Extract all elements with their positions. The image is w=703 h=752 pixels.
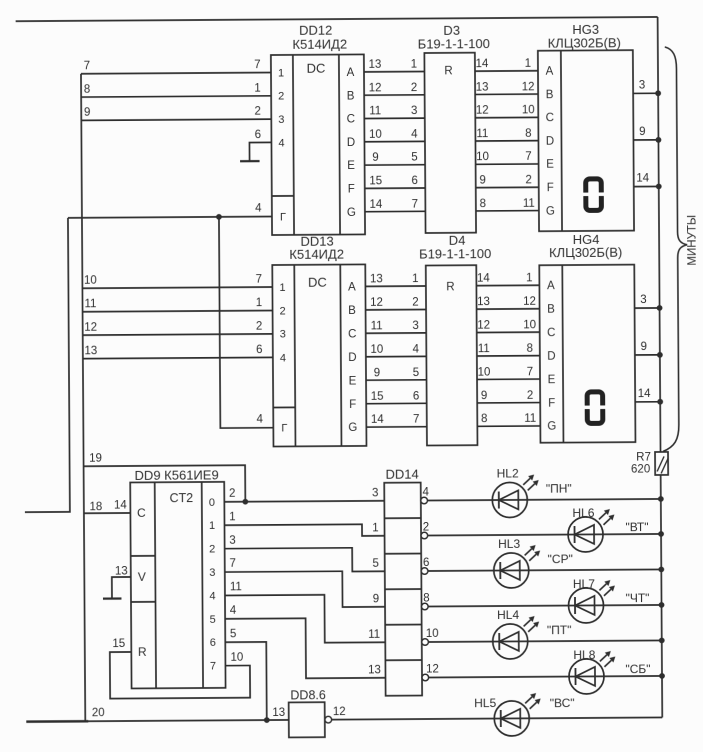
svg-text:15: 15: [371, 391, 384, 403]
svg-text:620: 620: [631, 464, 650, 476]
svg-text:HL8: HL8: [573, 648, 595, 662]
svg-text:13: 13: [476, 81, 489, 93]
svg-text:4: 4: [280, 352, 286, 364]
svg-text:13: 13: [115, 565, 128, 577]
svg-text:12: 12: [369, 82, 382, 94]
svg-text:R7: R7: [636, 452, 651, 464]
svg-text:HL5: HL5: [474, 696, 496, 710]
svg-text:4: 4: [278, 137, 284, 149]
svg-text:К514ИД2: К514ИД2: [292, 37, 347, 52]
svg-text:7: 7: [84, 60, 90, 72]
svg-text:B: B: [348, 305, 356, 317]
svg-text:7: 7: [256, 274, 262, 286]
svg-text:8: 8: [84, 84, 90, 96]
svg-text:10: 10: [478, 366, 491, 378]
svg-text:"ПН": "ПН": [546, 482, 572, 496]
svg-text:C: C: [347, 114, 355, 126]
svg-text:14: 14: [638, 388, 651, 400]
svg-text:HL6: HL6: [572, 506, 594, 520]
svg-text:11: 11: [476, 128, 488, 140]
svg-text:2: 2: [525, 174, 531, 186]
svg-text:DD9 К561ИЕ9: DD9 К561ИЕ9: [135, 467, 219, 483]
svg-text:1: 1: [279, 282, 285, 294]
svg-text:3: 3: [280, 329, 286, 341]
svg-text:10: 10: [369, 129, 382, 141]
svg-text:Б19-1-1-100: Б19-1-1-100: [419, 246, 491, 261]
svg-text:B: B: [547, 304, 555, 316]
svg-text:G: G: [348, 422, 357, 434]
svg-text:9: 9: [641, 341, 647, 353]
svg-text:R: R: [446, 281, 454, 293]
svg-text:20: 20: [92, 707, 105, 719]
svg-text:DD8.6: DD8.6: [290, 688, 326, 702]
svg-text:R: R: [444, 65, 452, 77]
svg-text:HL2: HL2: [497, 467, 519, 481]
svg-text:0: 0: [209, 497, 215, 509]
svg-text:4: 4: [423, 486, 430, 498]
svg-text:5: 5: [413, 367, 419, 379]
svg-text:V: V: [138, 570, 146, 584]
svg-text:F: F: [349, 399, 356, 411]
svg-text:13: 13: [84, 345, 97, 357]
svg-text:15: 15: [112, 638, 125, 650]
svg-text:CT2: CT2: [169, 491, 193, 505]
svg-text:14: 14: [477, 273, 490, 285]
svg-text:12: 12: [523, 296, 536, 308]
svg-text:11: 11: [478, 343, 490, 355]
svg-text:1: 1: [278, 67, 284, 79]
svg-text:11: 11: [230, 581, 242, 593]
svg-text:13: 13: [477, 296, 490, 308]
svg-text:D: D: [547, 351, 555, 363]
svg-text:G: G: [546, 205, 555, 217]
svg-text:E: E: [347, 160, 355, 172]
svg-text:13: 13: [272, 707, 285, 719]
svg-text:14: 14: [114, 499, 127, 511]
svg-text:7: 7: [413, 414, 419, 426]
svg-text:13: 13: [368, 59, 381, 71]
svg-text:"ЧТ": "ЧТ": [626, 591, 650, 605]
svg-text:9: 9: [373, 593, 379, 605]
svg-text:6: 6: [210, 637, 216, 649]
svg-text:DC: DC: [308, 275, 327, 290]
svg-text:9: 9: [639, 126, 645, 138]
svg-text:F: F: [548, 397, 555, 409]
svg-text:D: D: [347, 137, 355, 149]
svg-text:19: 19: [89, 453, 102, 465]
svg-text:4: 4: [255, 203, 262, 215]
svg-text:7: 7: [527, 366, 533, 378]
svg-text:3: 3: [278, 114, 284, 126]
svg-text:Г: Г: [281, 423, 287, 435]
svg-text:3: 3: [411, 105, 417, 117]
svg-text:КЛЦ302Б(В): КЛЦ302Б(В): [548, 35, 621, 50]
svg-text:"СБ": "СБ": [625, 662, 650, 676]
svg-text:11: 11: [85, 298, 97, 310]
svg-text:10: 10: [426, 628, 439, 640]
svg-text:14: 14: [369, 199, 382, 211]
svg-text:3: 3: [639, 79, 645, 91]
svg-text:1: 1: [525, 58, 531, 70]
svg-text:12: 12: [370, 297, 383, 309]
svg-text:D: D: [546, 136, 554, 148]
svg-text:"ПТ": "ПТ": [547, 623, 572, 637]
svg-text:10: 10: [523, 319, 536, 331]
svg-text:2: 2: [229, 488, 235, 500]
svg-text:1: 1: [372, 522, 378, 534]
svg-text:C: C: [546, 112, 554, 124]
svg-text:1: 1: [209, 520, 215, 532]
svg-text:10: 10: [476, 151, 489, 163]
svg-text:12: 12: [477, 319, 490, 331]
svg-text:12: 12: [522, 81, 535, 93]
svg-text:4: 4: [257, 414, 264, 426]
svg-text:G: G: [347, 207, 356, 219]
svg-text:14: 14: [636, 173, 649, 185]
svg-text:5: 5: [210, 614, 216, 626]
svg-text:12: 12: [333, 706, 346, 718]
svg-text:9: 9: [84, 107, 90, 119]
svg-text:3: 3: [640, 294, 646, 306]
svg-text:1: 1: [229, 511, 235, 523]
svg-text:2: 2: [278, 91, 284, 103]
svg-text:К514ИД2: К514ИД2: [289, 247, 344, 262]
svg-text:"СР": "СР": [548, 552, 573, 566]
svg-text:6: 6: [256, 344, 262, 356]
svg-text:13: 13: [370, 273, 383, 285]
svg-text:8: 8: [480, 198, 486, 210]
svg-text:2: 2: [527, 390, 533, 402]
svg-text:F: F: [348, 183, 355, 195]
svg-text:3: 3: [412, 320, 418, 332]
svg-text:2: 2: [411, 82, 417, 94]
svg-text:4: 4: [413, 343, 420, 355]
svg-text:7: 7: [210, 661, 216, 673]
svg-text:9: 9: [479, 175, 485, 187]
svg-text:"ВТ": "ВТ": [625, 520, 648, 534]
svg-text:4: 4: [209, 590, 215, 602]
svg-text:8: 8: [525, 128, 531, 140]
svg-text:2: 2: [279, 305, 285, 317]
svg-text:11: 11: [524, 413, 536, 425]
svg-text:6: 6: [255, 129, 261, 141]
svg-text:18: 18: [89, 501, 102, 513]
svg-text:15: 15: [369, 175, 382, 187]
svg-text:2: 2: [255, 106, 261, 118]
svg-text:E: E: [548, 374, 556, 386]
svg-text:10: 10: [230, 652, 243, 664]
svg-text:1: 1: [256, 297, 262, 309]
svg-text:8: 8: [481, 413, 487, 425]
svg-text:6: 6: [413, 390, 419, 402]
svg-text:G: G: [547, 421, 556, 433]
svg-text:C: C: [348, 328, 356, 340]
svg-text:5: 5: [411, 152, 417, 164]
svg-text:7: 7: [525, 151, 531, 163]
svg-text:14: 14: [371, 414, 384, 426]
svg-text:11: 11: [523, 198, 535, 210]
svg-text:9: 9: [374, 367, 380, 379]
svg-text:B: B: [546, 89, 554, 101]
svg-text:3: 3: [209, 567, 215, 579]
svg-text:9: 9: [481, 390, 487, 402]
svg-text:2: 2: [412, 297, 418, 309]
svg-text:3: 3: [229, 535, 235, 547]
svg-text:E: E: [546, 159, 554, 171]
svg-text:5: 5: [373, 558, 379, 570]
svg-text:A: A: [546, 66, 554, 78]
svg-text:6: 6: [411, 175, 417, 187]
svg-text:8: 8: [527, 343, 533, 355]
svg-text:2: 2: [423, 521, 429, 533]
svg-text:2: 2: [256, 320, 262, 332]
svg-text:11: 11: [371, 320, 383, 332]
svg-text:HL4: HL4: [497, 608, 519, 622]
svg-text:11: 11: [368, 629, 380, 641]
svg-text:E: E: [349, 375, 357, 387]
svg-text:1: 1: [526, 272, 532, 284]
svg-text:7: 7: [412, 198, 418, 210]
svg-text:12: 12: [84, 322, 97, 334]
svg-text:C: C: [137, 506, 146, 520]
svg-text:C: C: [547, 327, 555, 339]
svg-text:10: 10: [84, 275, 97, 287]
svg-text:F: F: [547, 182, 554, 194]
svg-text:Г: Г: [280, 211, 286, 223]
svg-text:3: 3: [372, 487, 378, 499]
svg-text:12: 12: [426, 663, 439, 675]
svg-text:D: D: [348, 352, 356, 364]
svg-text:10: 10: [522, 104, 535, 116]
svg-text:B: B: [347, 90, 355, 102]
svg-text:DD14: DD14: [385, 467, 418, 482]
svg-text:1: 1: [411, 59, 417, 71]
svg-text:6: 6: [423, 557, 429, 569]
svg-text:2: 2: [209, 544, 215, 556]
svg-text:7: 7: [230, 558, 236, 570]
svg-text:"ВС": "ВС": [550, 696, 575, 710]
svg-text:МИНУТЫ: МИНУТЫ: [686, 215, 698, 266]
svg-text:DC: DC: [307, 61, 326, 76]
svg-text:1: 1: [412, 273, 418, 285]
svg-text:1: 1: [254, 82, 260, 94]
svg-text:DD12: DD12: [299, 23, 332, 38]
svg-text:13: 13: [368, 664, 381, 676]
svg-text:КЛЦ302Б(В): КЛЦ302Б(В): [549, 245, 622, 260]
svg-text:A: A: [547, 280, 555, 292]
svg-text:14: 14: [475, 58, 488, 70]
svg-text:7: 7: [254, 59, 260, 71]
svg-text:HL7: HL7: [573, 577, 595, 591]
svg-text:10: 10: [370, 344, 383, 356]
svg-text:5: 5: [230, 628, 236, 640]
svg-text:12: 12: [476, 105, 489, 117]
svg-text:4: 4: [230, 605, 237, 617]
svg-text:9: 9: [372, 152, 378, 164]
svg-text:4: 4: [411, 128, 418, 140]
svg-text:Б19-1-1-100: Б19-1-1-100: [418, 36, 490, 51]
svg-text:11: 11: [369, 105, 381, 117]
svg-text:A: A: [348, 281, 356, 293]
svg-text:HL3: HL3: [498, 537, 520, 551]
svg-text:8: 8: [423, 592, 429, 604]
svg-text:R: R: [138, 645, 147, 659]
svg-text:A: A: [347, 67, 355, 79]
